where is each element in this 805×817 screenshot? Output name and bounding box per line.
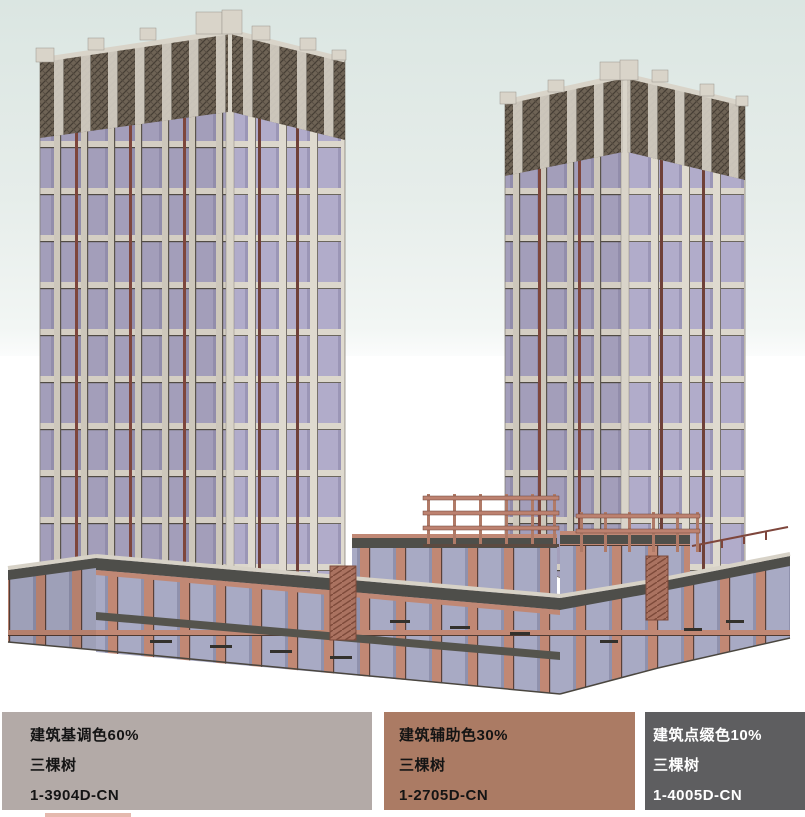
swatch-accent-color: 建筑点缀色10% 三棵树 1-4005D-CN (645, 712, 805, 810)
swatch-brand-label: 三棵树 (399, 751, 635, 781)
cropped-edge-artifact (45, 813, 131, 817)
swatch-color-code: 1-4005D-CN (653, 781, 805, 811)
swatch-base-color: 建筑基调色60% 三棵树 1-3904D-CN (2, 712, 372, 810)
swatch-color-code: 1-2705D-CN (399, 781, 635, 811)
brick-screen-left (330, 566, 356, 640)
podium-west-end-face (8, 556, 96, 650)
building-rendering (0, 0, 805, 712)
left-tower-corner-pilaster (226, 30, 234, 648)
swatch-role-label: 建筑辅助色30% (399, 721, 635, 751)
paint-palette-bar: 建筑基调色60% 三棵树 1-3904D-CN 建筑辅助色30% 三棵树 1-2… (0, 712, 805, 810)
swatch-secondary-color: 建筑辅助色30% 三棵树 1-2705D-CN (384, 712, 635, 810)
right-tower (500, 60, 748, 602)
swatch-role-label: 建筑点缀色10% (653, 721, 805, 751)
right-tower-corner-pilaster (621, 74, 629, 602)
left-tower (36, 10, 346, 648)
brick-screen-right (646, 556, 668, 620)
swatch-brand-label: 三棵树 (653, 751, 805, 781)
swatch-role-label: 建筑基调色60% (30, 721, 372, 751)
color-scheme-board: 建筑基调色60% 三棵树 1-3904D-CN 建筑辅助色30% 三棵树 1-2… (0, 0, 805, 817)
swatch-brand-label: 三棵树 (30, 751, 372, 781)
swatch-color-code: 1-3904D-CN (30, 781, 372, 811)
